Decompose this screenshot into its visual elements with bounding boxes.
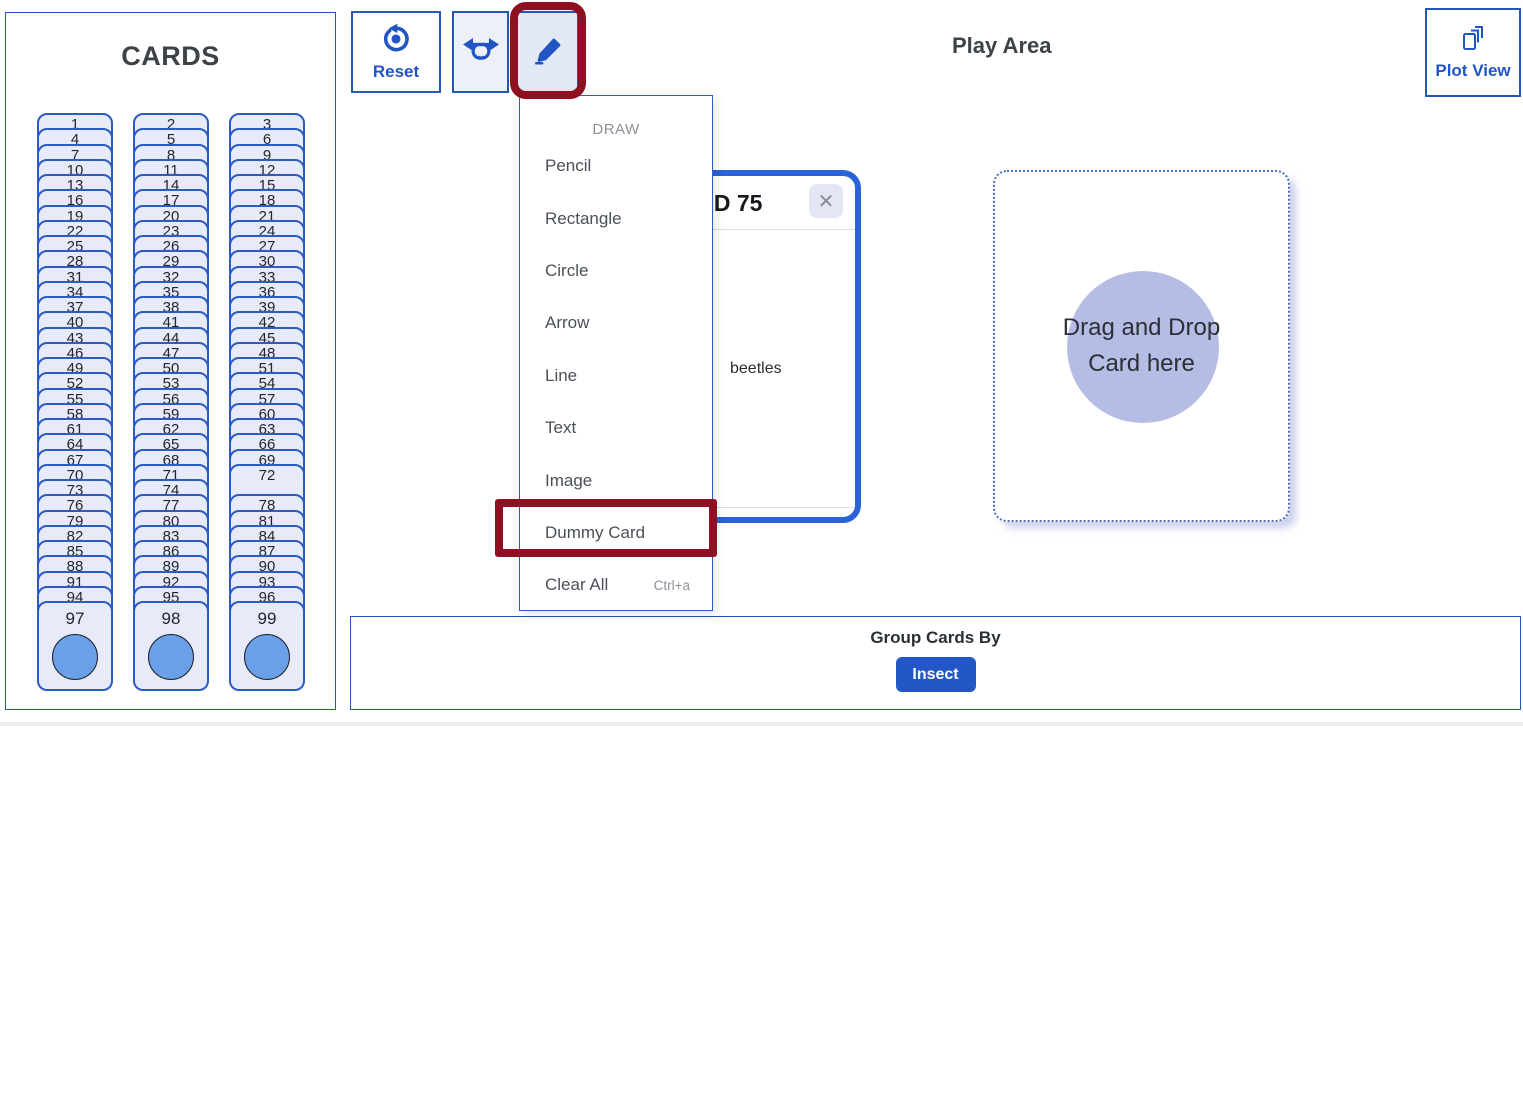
drop-zone-text-line2: Card here <box>1063 346 1220 382</box>
shuffle-button[interactable] <box>452 11 509 93</box>
draw-menu-items: PencilRectangleCircleArrowLineTextImageD… <box>520 140 712 612</box>
cards-panel: CARDS 1471013161922252831343740434649525… <box>5 12 336 710</box>
stacked-card-99[interactable]: 99 <box>229 601 305 691</box>
menu-item-label: Pencil <box>545 156 591 176</box>
card-stack-column-1: 1471013161922252831343740434649525558616… <box>37 113 113 695</box>
card-number: 98 <box>162 610 181 629</box>
menu-item-arrow[interactable]: Arrow <box>520 297 712 349</box>
card-marker-circle-icon <box>244 634 290 680</box>
menu-item-clear-all[interactable]: Clear AllCtrl+a <box>520 559 712 611</box>
menu-item-circle[interactable]: Circle <box>520 245 712 297</box>
menu-item-line[interactable]: Line <box>520 350 712 402</box>
menu-item-dummy-card[interactable]: Dummy Card <box>520 507 712 559</box>
menu-item-label: Dummy Card <box>545 523 645 543</box>
play-area-title: Play Area <box>952 33 1051 59</box>
menu-item-label: Line <box>545 366 577 386</box>
card-marker-circle-icon <box>52 634 98 680</box>
menu-item-label: Text <box>545 418 576 438</box>
card-stack-column-2: 2581114172023262932353841444750535659626… <box>133 113 209 695</box>
stacked-card-97[interactable]: 97 <box>37 601 113 691</box>
reset-button-label: Reset <box>373 62 419 82</box>
drop-zone-text-line1: Drag and Drop <box>1063 310 1220 346</box>
card-marker-circle-icon <box>148 634 194 680</box>
reset-button[interactable]: Reset <box>351 11 441 93</box>
plot-view-button[interactable]: Plot View <box>1425 8 1521 97</box>
menu-item-label: Rectangle <box>545 209 622 229</box>
group-cards-by-label: Group Cards By <box>870 628 1000 648</box>
menu-item-pencil[interactable]: Pencil <box>520 140 712 192</box>
card-number: 72 <box>259 468 276 485</box>
cards-panel-title: CARDS <box>6 41 335 72</box>
page-divider <box>0 722 1523 726</box>
group-by-insect-button[interactable]: Insect <box>896 657 976 692</box>
drop-zone[interactable]: Drag and Drop Card here <box>993 170 1290 522</box>
menu-item-label: Image <box>545 471 592 491</box>
plot-view-label: Plot View <box>1435 61 1510 81</box>
group-cards-bar: Group Cards By Insect <box>350 616 1521 710</box>
draw-menu-header: DRAW <box>520 96 712 140</box>
menu-item-image[interactable]: Image <box>520 454 712 506</box>
reset-circular-arrow-icon <box>380 23 412 58</box>
menu-item-label: Arrow <box>545 313 589 333</box>
play-card-body-text: beetles <box>730 360 782 378</box>
menu-item-shortcut: Ctrl+a <box>654 578 690 593</box>
pencil-icon <box>532 35 564 70</box>
menu-item-rectangle[interactable]: Rectangle <box>520 192 712 244</box>
menu-item-text[interactable]: Text <box>520 402 712 454</box>
card-stack-column-3: 3691215182124273033363942454851545760636… <box>229 113 305 695</box>
card-number: 99 <box>258 610 277 629</box>
card-number: 97 <box>66 610 85 629</box>
draw-button[interactable] <box>516 11 579 93</box>
stacked-card-98[interactable]: 98 <box>133 601 209 691</box>
close-icon: ✕ <box>818 189 835 214</box>
shuffle-arrows-icon <box>461 36 501 69</box>
close-button[interactable]: ✕ <box>809 184 843 218</box>
stacked-cards-icon <box>1458 24 1488 57</box>
card-stacks: 1471013161922252831343740434649525558616… <box>37 113 305 695</box>
draw-dropdown-menu: DRAW PencilRectangleCircleArrowLineTextI… <box>519 95 713 611</box>
drop-zone-text: Drag and Drop Card here <box>1063 310 1220 382</box>
menu-item-label: Clear All <box>545 575 608 595</box>
menu-item-label: Circle <box>545 261 588 281</box>
